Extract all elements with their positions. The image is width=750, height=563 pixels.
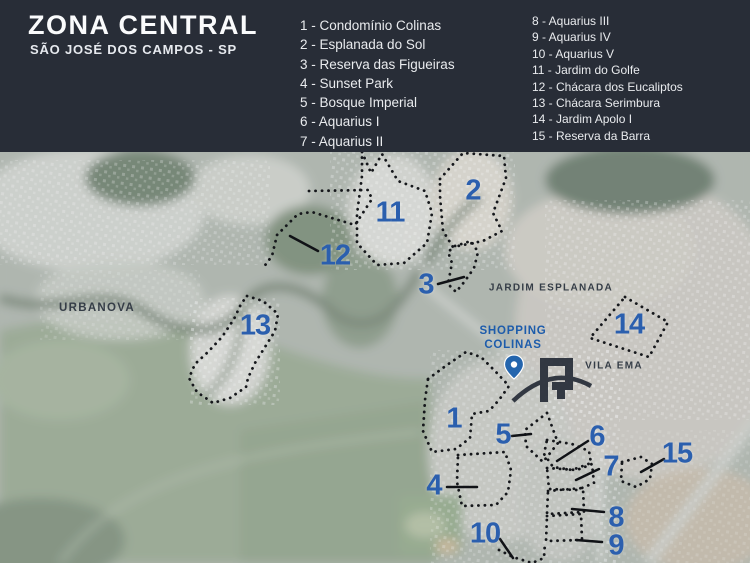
region-number-label-13: 13 (240, 310, 270, 343)
map-infographic: URBANOVAJARDIM ESPLANADAVILA EMA SHOPPIN… (0, 0, 750, 563)
shopping-colinas-line2: COLINAS (479, 338, 546, 352)
legend-item: 13 - Chácara Serimbura (532, 95, 683, 111)
region-number-label-14: 14 (614, 309, 644, 342)
region-number-label-3: 3 (418, 269, 433, 302)
page-title: ZONA CENTRAL (28, 10, 258, 41)
legend-item: 6 - Aquarius I (300, 112, 455, 131)
legend-item: 12 - Chácara dos Eucaliptos (532, 79, 683, 95)
region-number-label-5: 5 (495, 419, 510, 452)
region-number-label-1: 1 (446, 403, 461, 436)
legend-item: 10 - Aquarius V (532, 46, 683, 62)
region-number-label-12: 12 (320, 240, 350, 273)
legend-column-1: 1 - Condomínio Colinas2 - Esplanada do S… (300, 16, 455, 151)
legend-column-2: 8 - Aquarius III9 - Aquarius IV10 - Aqua… (532, 13, 683, 144)
legend-item: 3 - Reserva das Figueiras (300, 55, 455, 74)
legend-item: 2 - Esplanada do Sol (300, 35, 455, 54)
area-label: JARDIM ESPLANADA (489, 283, 613, 294)
region-number-label-11: 11 (376, 197, 405, 230)
area-label: URBANOVA (59, 302, 135, 314)
legend-item: 5 - Bosque Imperial (300, 93, 455, 112)
region-number-label-6: 6 (589, 421, 604, 454)
shopping-colinas-line1: SHOPPING (479, 324, 546, 338)
header: ZONA CENTRAL SÃO JOSÉ DOS CAMPOS - SP 1 … (0, 0, 750, 152)
region-number-label-4: 4 (426, 470, 441, 503)
legend-item: 15 - Reserva da Barra (532, 128, 683, 144)
legend-item: 8 - Aquarius III (532, 13, 683, 29)
legend-item: 4 - Sunset Park (300, 74, 455, 93)
legend-item: 14 - Jardim Apolo I (532, 111, 683, 127)
legend-item: 1 - Condomínio Colinas (300, 16, 455, 35)
region-number-label-10: 10 (470, 518, 500, 551)
area-label: VILA EMA (585, 361, 643, 372)
region-number-label-15: 15 (662, 438, 692, 471)
legend-item: 11 - Jardim do Golfe (532, 62, 683, 78)
legend-item: 7 - Aquarius II (300, 132, 455, 151)
region-number-label-2: 2 (465, 175, 480, 208)
region-number-label-9: 9 (608, 530, 623, 563)
shopping-colinas-label: SHOPPING COLINAS (479, 324, 546, 352)
page-subtitle: SÃO JOSÉ DOS CAMPOS - SP (30, 42, 237, 57)
legend-item: 9 - Aquarius IV (532, 29, 683, 45)
region-number-label-7: 7 (603, 451, 618, 484)
